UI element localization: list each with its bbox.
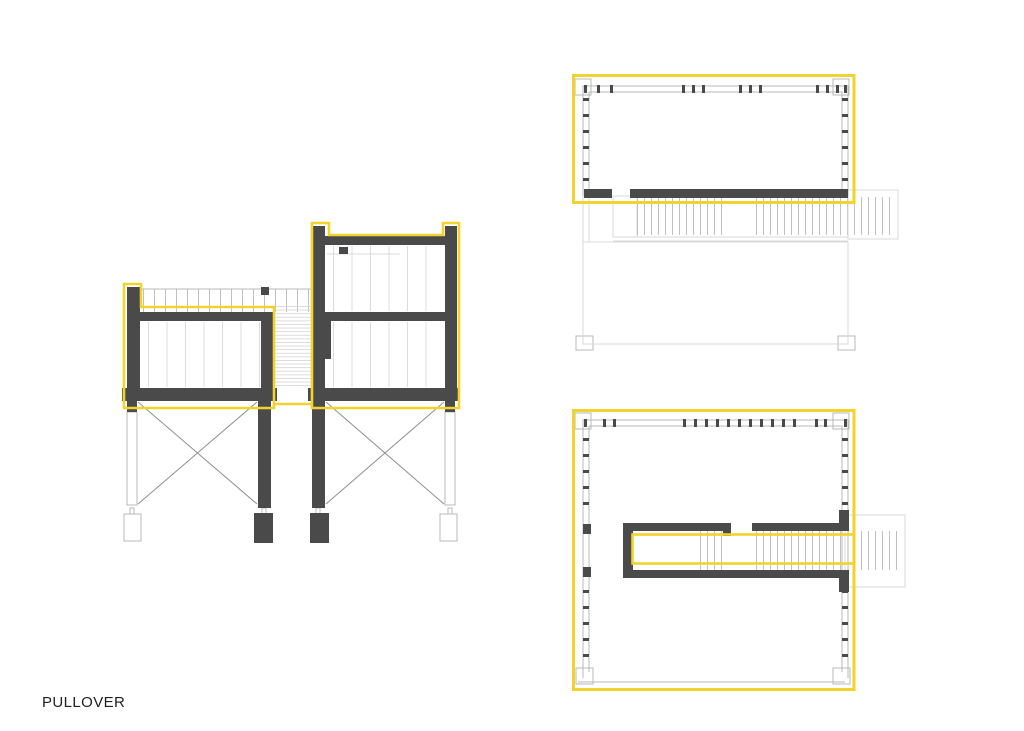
footing-solid <box>254 513 273 543</box>
stair-corridor <box>623 510 905 592</box>
drawing-sheet: PULLOVER <box>0 0 1024 731</box>
footing-solid <box>310 513 329 543</box>
lower-roof-outline <box>576 242 855 350</box>
plan-highlight-outline <box>574 76 855 203</box>
wall-stud-ticks <box>583 98 589 181</box>
footing-outline <box>124 514 141 541</box>
wall-stud-ticks <box>842 98 848 181</box>
connecting-stair <box>274 306 312 388</box>
drawing-label: PULLOVER <box>42 694 125 711</box>
wall-stud-ticks <box>583 438 589 657</box>
section-drawing <box>122 223 460 543</box>
x-bracing <box>138 402 444 504</box>
right-volume <box>308 226 460 401</box>
upper-floor-plan <box>574 76 899 351</box>
lower-floor-plan <box>574 411 906 690</box>
footing-outline <box>440 514 457 541</box>
architectural-drawing-canvas <box>0 0 1024 731</box>
